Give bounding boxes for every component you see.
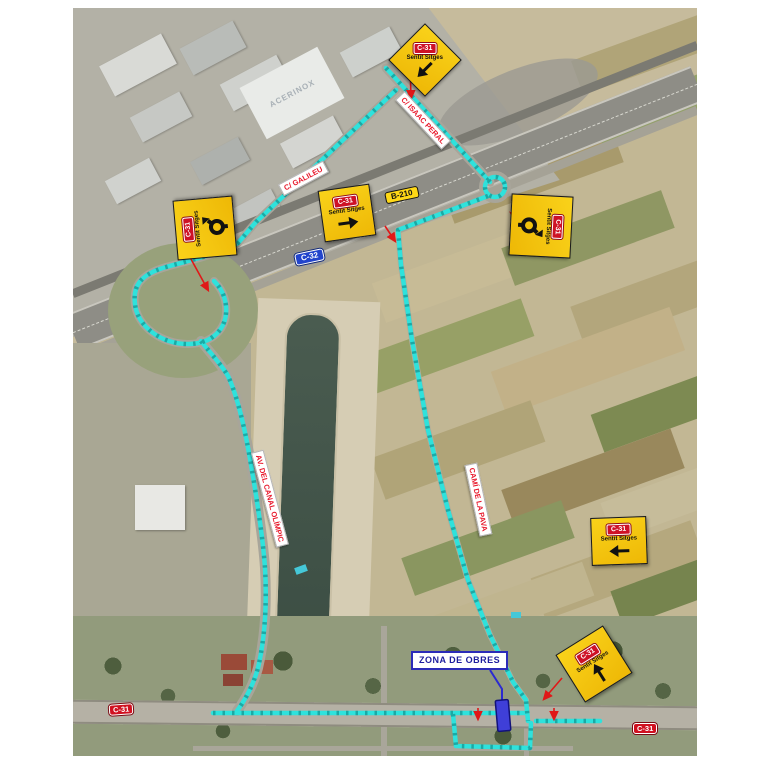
c31-shield: C-31 <box>552 215 564 239</box>
detour-sign-east-roundabout: C-31 Sentit Sitges <box>508 193 573 258</box>
arrow-left-icon <box>607 542 632 559</box>
satellite-map: ACERINOX <box>73 8 697 756</box>
work-zone-marker <box>490 670 511 732</box>
c31-shield: C-31 <box>413 43 436 54</box>
detour-sign-east: C-31 Sentit Sitges <box>590 516 648 566</box>
work-zone-label: ZONA DE OBRES <box>411 651 508 670</box>
sign-direction-text: Sentit Sitges <box>545 208 553 245</box>
detour-map-page: ACERINOX <box>0 0 768 767</box>
sign-direction-text: Sentit Sitges <box>601 535 638 542</box>
c31-shield: C-31 <box>182 217 195 241</box>
c31-shield: C-31 <box>607 523 631 535</box>
detour-sign-galileu: C-31 Sentit Sitges <box>318 184 377 243</box>
roundabout-icon <box>518 212 545 239</box>
detour-route <box>135 68 600 748</box>
red-arrows <box>186 63 562 719</box>
road-badge-c31-east: C-31 <box>633 723 657 734</box>
arrow-right-icon <box>335 213 361 232</box>
roundabout-icon <box>200 213 228 241</box>
detour-sign-west-roundabout: C-31 Sentit Sitges <box>172 195 237 260</box>
road-badge-c31-west: C-31 <box>109 703 134 716</box>
local-roads <box>135 68 526 711</box>
